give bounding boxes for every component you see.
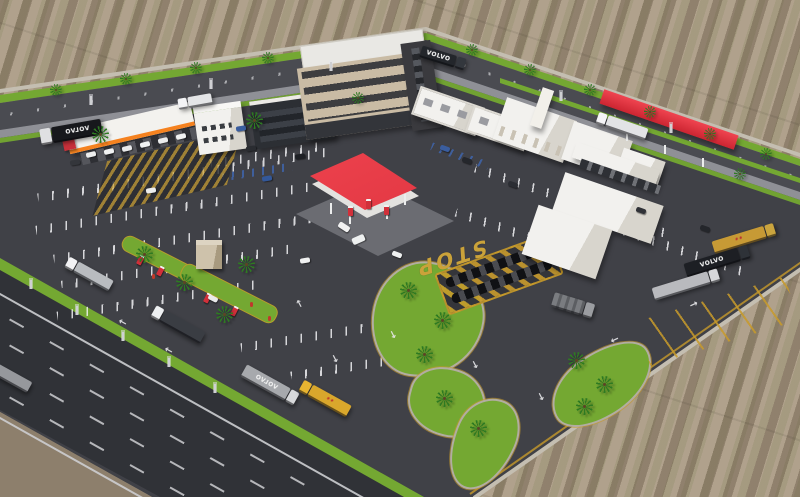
street-light	[210, 80, 212, 89]
palm-tree-icon	[568, 352, 585, 369]
street-light	[670, 124, 672, 133]
palm-tree-icon	[644, 106, 656, 118]
palm-tree-icon	[760, 148, 772, 160]
canopy-column	[404, 194, 406, 205]
palm-tree-icon	[416, 346, 433, 363]
palm-tree-icon	[120, 73, 132, 85]
palm-tree-icon	[470, 420, 487, 437]
palm-tree-icon	[734, 168, 746, 180]
palm-tree-icon	[596, 376, 613, 393]
attendant-figure	[250, 302, 253, 307]
palm-tree-icon	[238, 256, 255, 273]
attendant-figure	[268, 316, 271, 321]
canopy-column	[664, 145, 666, 154]
palm-tree-icon	[246, 112, 263, 129]
street-light	[122, 332, 124, 341]
street-light	[168, 358, 170, 367]
guard-kiosk	[196, 240, 222, 269]
truck-cab	[177, 97, 188, 109]
palm-tree-icon	[576, 398, 593, 415]
palm-tree-icon	[92, 126, 109, 143]
canopy-column	[702, 158, 704, 167]
palm-tree-icon	[176, 274, 193, 291]
office-building-group	[294, 26, 456, 146]
volvo-logo: VOLVO	[64, 124, 90, 135]
roof-unit	[478, 116, 489, 126]
palm-tree-icon	[584, 84, 596, 96]
street-light	[90, 96, 92, 105]
canopy-column	[330, 203, 332, 214]
building-windows	[203, 134, 233, 143]
palm-tree-icon	[400, 282, 417, 299]
street-light	[560, 92, 562, 101]
fuel-pump	[384, 205, 389, 215]
roof-unit	[423, 98, 434, 108]
street-light	[76, 306, 78, 315]
palm-tree-icon	[50, 84, 62, 96]
palm-tree-icon	[524, 64, 536, 76]
roof-unit	[440, 104, 451, 114]
palm-tree-icon	[262, 52, 274, 64]
fuel-pump	[348, 206, 353, 216]
street-light	[214, 384, 216, 393]
palm-tree-icon	[216, 306, 233, 323]
palm-tree-icon	[704, 128, 716, 140]
rest-area-aerial-render: STOP	[0, 0, 800, 497]
palm-tree-icon	[434, 312, 451, 329]
palm-tree-icon	[136, 246, 153, 263]
street-light	[330, 62, 332, 71]
building-windows	[202, 122, 232, 131]
street-light	[30, 280, 32, 289]
palm-tree-icon	[466, 44, 478, 56]
roof-unit	[457, 110, 468, 120]
palm-tree-icon	[190, 62, 202, 74]
fuel-pump	[366, 199, 371, 209]
attendant-figure	[152, 274, 155, 279]
palm-tree-icon	[436, 390, 453, 407]
palm-tree-icon	[352, 92, 364, 104]
